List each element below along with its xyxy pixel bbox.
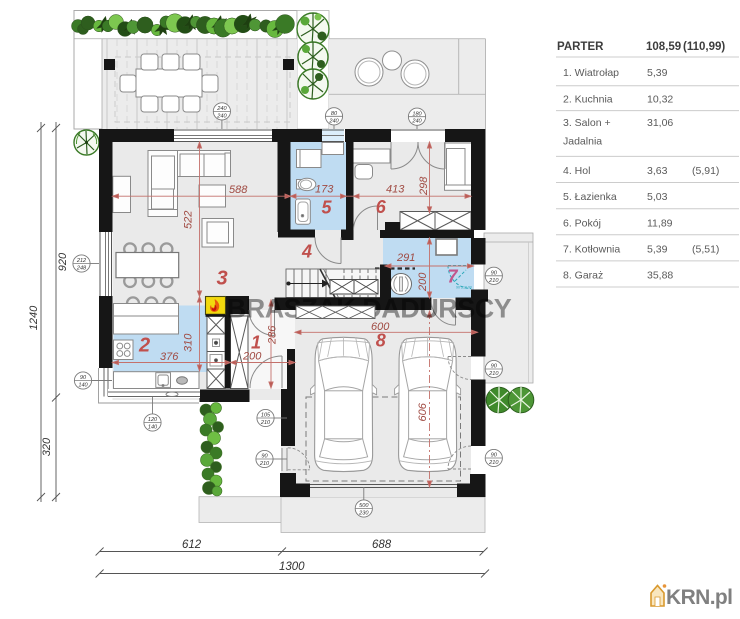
svg-text:31,06: 31,06 (647, 117, 673, 129)
svg-text:210: 210 (488, 278, 499, 284)
svg-text:286: 286 (267, 325, 279, 345)
svg-text:612: 612 (182, 539, 202, 551)
svg-text:90: 90 (80, 375, 87, 381)
svg-text:Jadalnia: Jadalnia (563, 136, 602, 148)
svg-text:210: 210 (488, 460, 499, 466)
svg-text:7. Kotłownia: 7. Kotłownia (563, 244, 620, 256)
svg-text:90: 90 (491, 453, 498, 459)
svg-text:240: 240 (216, 113, 227, 119)
svg-text:10,32: 10,32 (647, 94, 673, 106)
svg-text:90: 90 (261, 454, 268, 460)
svg-text:173: 173 (315, 184, 334, 196)
svg-text:240: 240 (216, 106, 227, 112)
svg-text:(5,91): (5,91) (692, 165, 719, 177)
svg-text:320: 320 (41, 437, 53, 456)
svg-text:1240: 1240 (28, 305, 40, 330)
svg-text:1300: 1300 (279, 561, 305, 573)
svg-text:8: 8 (376, 331, 386, 351)
svg-text:90: 90 (491, 270, 498, 276)
svg-text:35,88: 35,88 (647, 270, 673, 282)
svg-text:5,39: 5,39 (647, 67, 668, 79)
svg-text:80: 80 (331, 111, 338, 117)
svg-text:5,03: 5,03 (647, 191, 668, 203)
svg-text:7: 7 (447, 267, 458, 287)
svg-text:105: 105 (261, 413, 271, 419)
svg-text:(110,99): (110,99) (683, 41, 725, 53)
svg-text:500: 500 (359, 503, 369, 509)
svg-text:180: 180 (412, 111, 422, 117)
svg-text:8. Garaż: 8. Garaż (563, 270, 603, 282)
svg-text:6. Pokój: 6. Pokój (563, 218, 601, 230)
svg-text:210: 210 (488, 371, 499, 377)
svg-text:(5,51): (5,51) (692, 244, 719, 256)
svg-text:90: 90 (491, 364, 498, 370)
svg-text:140: 140 (148, 425, 158, 431)
svg-text:5,39: 5,39 (647, 244, 668, 256)
svg-text:3. Salon +: 3. Salon + (563, 117, 611, 129)
svg-text:248: 248 (76, 266, 87, 272)
svg-text:210: 210 (259, 461, 270, 467)
svg-text:291: 291 (396, 252, 415, 264)
svg-text:376: 376 (160, 351, 179, 363)
svg-text:108,59: 108,59 (646, 41, 681, 53)
svg-text:4. Hol: 4. Hol (563, 165, 590, 177)
svg-text:KRN.pl: KRN.pl (666, 586, 732, 609)
svg-text:240: 240 (328, 118, 339, 124)
svg-text:210: 210 (260, 420, 271, 426)
svg-text:240: 240 (411, 119, 422, 125)
svg-text:588: 588 (229, 184, 248, 196)
svg-text:298: 298 (418, 176, 430, 196)
svg-text:5. Łazienka: 5. Łazienka (563, 191, 617, 203)
svg-text:688: 688 (372, 539, 392, 551)
svg-text:413: 413 (386, 184, 405, 196)
svg-text:2: 2 (138, 335, 150, 357)
svg-text:212: 212 (76, 258, 87, 264)
svg-text:90 210 90: 90 210 90 (456, 286, 472, 290)
svg-text:606: 606 (417, 402, 429, 421)
svg-text:2. Kuchnia: 2. Kuchnia (563, 94, 613, 106)
svg-text:1. Wiatrołap: 1. Wiatrołap (563, 67, 619, 79)
svg-text:120: 120 (148, 417, 158, 423)
svg-text:1: 1 (251, 333, 261, 353)
svg-text:11,89: 11,89 (647, 218, 673, 230)
svg-text:522: 522 (183, 211, 195, 229)
svg-text:3: 3 (216, 268, 227, 290)
svg-text:140: 140 (78, 383, 88, 389)
svg-text:310: 310 (183, 333, 195, 352)
svg-text:PARTER: PARTER (557, 41, 604, 53)
svg-text:920: 920 (57, 252, 69, 271)
svg-text:200: 200 (417, 272, 429, 292)
svg-text:3,63: 3,63 (647, 165, 668, 177)
svg-text:6: 6 (376, 197, 387, 217)
svg-text:4: 4 (301, 242, 312, 262)
svg-text:230: 230 (358, 511, 369, 517)
svg-text:5: 5 (321, 198, 332, 218)
